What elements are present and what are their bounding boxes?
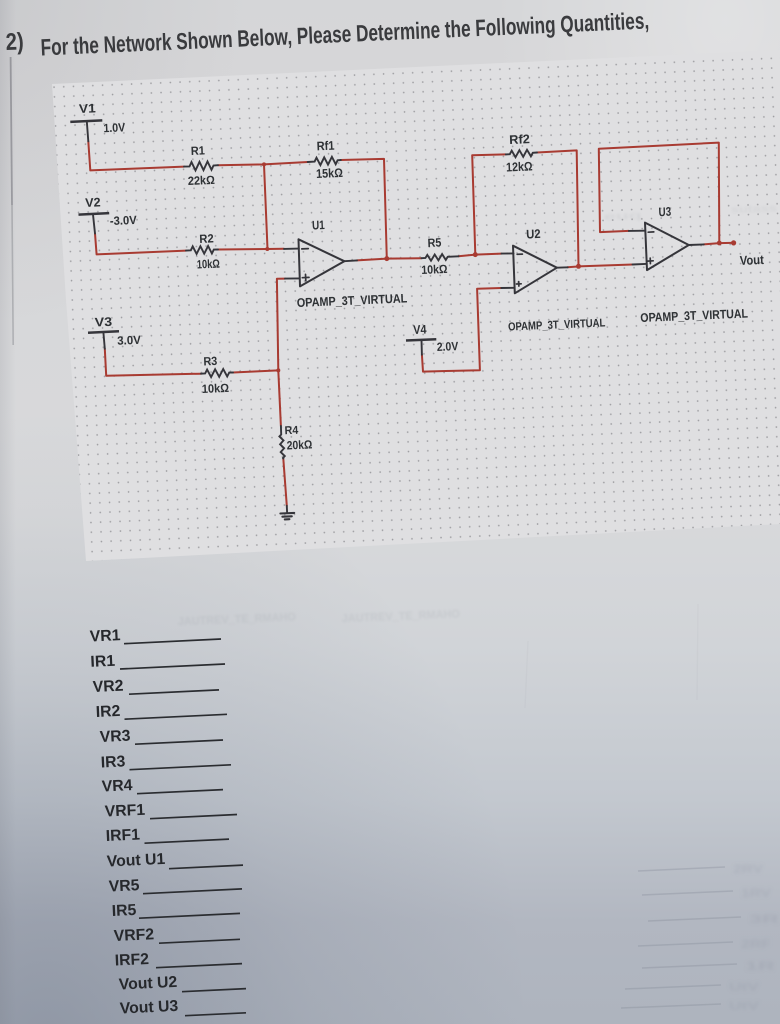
svg-text:12kΩ: 12kΩ: [506, 159, 533, 174]
svg-text:22kΩ: 22kΩ: [188, 173, 216, 188]
svg-text:U3: U3: [658, 205, 671, 220]
svg-text:VR5: VR5: [108, 877, 140, 895]
svg-text:10kΩ: 10kΩ: [197, 257, 221, 272]
svg-text:VR1: VR1: [89, 627, 121, 645]
svg-text:Vout: Vout: [739, 252, 764, 268]
svg-text:2RF: 2RF: [741, 937, 771, 951]
svg-text:1.0V: 1.0V: [103, 120, 125, 135]
svg-text:VRF1: VRF1: [104, 802, 145, 821]
svg-text:Vout U1: Vout U1: [106, 851, 165, 871]
svg-text:Rf1: Rf1: [316, 139, 334, 154]
svg-text:VR4: VR4: [101, 777, 133, 795]
svg-text:R5: R5: [427, 235, 442, 250]
svg-text:VR3: VR3: [99, 728, 131, 746]
svg-text:VRF2: VRF2: [113, 926, 154, 945]
svg-text:15kΩ: 15kΩ: [316, 166, 343, 181]
svg-text:VR2: VR2: [92, 678, 124, 696]
svg-text:V4: V4: [413, 322, 427, 337]
svg-text:sutass: sutass: [731, 203, 778, 216]
svg-text:IRF2: IRF2: [114, 951, 149, 970]
svg-text:V1: V1: [79, 101, 96, 116]
svg-text:U1: U1: [312, 218, 325, 233]
svg-text:10kΩ: 10kΩ: [202, 381, 230, 396]
svg-text:V2: V2: [85, 195, 101, 210]
svg-text:R3: R3: [203, 354, 218, 369]
svg-text:IRF1: IRF1: [105, 826, 140, 845]
svg-text:R2: R2: [199, 231, 214, 246]
svg-text:UtV: UtV: [729, 980, 759, 994]
svg-text:Rf2: Rf2: [509, 132, 530, 147]
svg-text:IR1: IR1: [90, 653, 116, 671]
svg-text:IR5: IR5: [111, 902, 137, 920]
svg-text:3R: 3R: [749, 912, 780, 926]
svg-text:2): 2): [5, 28, 24, 56]
svg-text:Vout U3: Vout U3: [119, 998, 178, 1018]
svg-text:2.0V: 2.0V: [437, 339, 459, 354]
svg-text:UtV: UtV: [729, 999, 759, 1013]
svg-text:R4: R4: [284, 425, 299, 438]
svg-text:1RV: 1RV: [741, 886, 771, 900]
svg-text:10kΩ: 10kΩ: [421, 262, 448, 277]
svg-text:20kΩ: 20kΩ: [286, 437, 312, 452]
svg-text:3.0V: 3.0V: [117, 333, 141, 348]
svg-text:IR2: IR2: [95, 703, 121, 721]
svg-text:R1: R1: [191, 143, 206, 158]
svg-text:1R: 1R: [745, 959, 776, 973]
svg-text:euq: euq: [604, 210, 642, 223]
svg-text:U2: U2: [526, 227, 541, 242]
svg-text:Vout U2: Vout U2: [118, 974, 177, 994]
svg-text:2RV: 2RV: [733, 862, 763, 876]
svg-text:V3: V3: [94, 315, 112, 330]
svg-text:-3.0V: -3.0V: [110, 213, 137, 228]
svg-text:IR3: IR3: [100, 753, 126, 771]
